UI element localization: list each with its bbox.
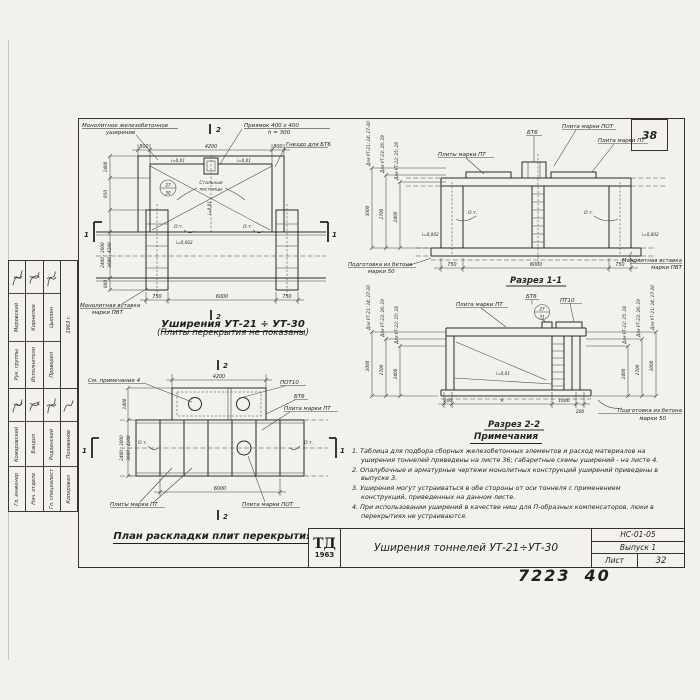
plan-slabs-texts: 2 4200 См. примечание 4 ПОТ10 БТ6 Плита … xyxy=(82,362,345,521)
callout-label: Монолитная вставка xyxy=(80,303,141,309)
axis-label: О.т. xyxy=(174,224,183,230)
dim-label: 750 xyxy=(447,262,456,268)
dim-label: 6000 xyxy=(530,262,542,268)
detail-balloon-top: 27 xyxy=(165,183,171,188)
dim-label: 2400 ; 3000 xyxy=(100,242,105,268)
chain-label: Для УТ-22; 25; 28 xyxy=(394,142,399,181)
dim-label: 750 xyxy=(152,294,161,300)
dim-label: 4200 xyxy=(213,374,225,380)
stamp-role: Нач. отдела xyxy=(31,473,37,505)
signature-icon xyxy=(9,389,25,422)
org-logo-text: ТД xyxy=(313,538,336,551)
note-item: 4. При использовании уширений в качестве… xyxy=(352,503,660,521)
chain-label: Для УТ-23; 26; 29 xyxy=(380,135,385,174)
dim-label: 2400 xyxy=(393,211,398,222)
axis-label: О.т. xyxy=(468,210,477,216)
handwritten-number: 7223 xyxy=(518,566,571,585)
callout-label: h = 300 xyxy=(268,130,291,136)
callout-label: Плита марки ПТ xyxy=(456,302,503,308)
signature-icon xyxy=(26,261,42,294)
stamp-group-upper: Мировский Рук. группы Корнилюк Исполните… xyxy=(9,261,77,389)
stamp-group-lower: Комаровский Гл. инженер Бандол Нач. отде… xyxy=(9,389,77,511)
dim-label: 750 xyxy=(615,262,624,268)
section-mark: 1 xyxy=(82,447,87,455)
stamp-name: Мировский xyxy=(14,303,20,332)
callout-label: БТ6 xyxy=(526,294,537,300)
stamp-entry: Комаровский Гл. инженер xyxy=(9,389,26,511)
sheet-number: 32 xyxy=(638,554,684,567)
notes-heading: Примечания xyxy=(352,424,660,443)
section-mark: 1 xyxy=(340,447,345,455)
callout-label: Монолитное железобетонное xyxy=(82,123,169,129)
section-1-1-figure: Для УТ-21; 24; 27-30 Для УТ-23; 26; 29 Д… xyxy=(346,116,684,288)
stamp-entry: Родзинский Гл. специалист xyxy=(44,389,61,511)
section-2-2-figure: Для УТ-21; 24; 27-30 Для УТ-23; 26; 29 Д… xyxy=(346,290,684,436)
handwritten-numbers: 722340 xyxy=(518,566,611,585)
callout-label: Плиты марки ПТ xyxy=(438,152,486,158)
slope-label: i=0,002 xyxy=(176,240,193,245)
callout-label: Монолитная вставка xyxy=(622,258,683,264)
dim-label: 6000 xyxy=(214,486,226,492)
chain-label: Для УТ-21; 24; 27-30 xyxy=(366,121,371,167)
dim-label: А xyxy=(499,398,503,404)
callout-label: Плита марки ПОТ xyxy=(242,502,294,508)
callout-label: Приямок 400 x 400 xyxy=(244,123,299,129)
drawing-sheet: 38 xyxy=(0,0,700,700)
dim-label: 950 xyxy=(103,190,108,198)
section-2-2-texts: Для УТ-21; 24; 27-30 Для УТ-23; 26; 29 Д… xyxy=(365,285,683,430)
callout-label: Подготовка из бетона xyxy=(348,262,413,268)
stamp-entry: Корнилюк Исполнители xyxy=(26,261,43,388)
org-logo: ТД 1963 xyxy=(309,529,341,567)
figure-title: Разрез 1-1 xyxy=(510,276,562,286)
title-block-right: НС-01-05 Выпуск 1 Лист 32 xyxy=(592,529,684,567)
note-item: 3. Уширения могут устраиваться в обе сто… xyxy=(352,484,660,502)
callout-label: ПТ10 xyxy=(560,298,575,304)
section-mark: 2 xyxy=(223,513,228,521)
org-logo-year: 1963 xyxy=(315,551,334,559)
signature-icon xyxy=(9,261,25,294)
drawing-title: Уширения тоннелей УТ-21÷УТ-30 xyxy=(341,529,592,567)
callout-label: марки 50 xyxy=(639,416,666,422)
section-mark: 2 xyxy=(223,362,228,370)
stamp-entry: Бандол Нач. отдела xyxy=(26,389,43,511)
callout-label: См. примечание 4 xyxy=(88,378,141,384)
chain-label: Для УТ-22; 25; 28 xyxy=(394,306,399,345)
callout-label: уширение xyxy=(105,130,136,136)
signature-icon xyxy=(26,389,42,422)
dim-label: 2400 xyxy=(393,368,398,379)
stamp-role: Исполнители xyxy=(31,347,37,382)
axis-label: О.т. xyxy=(584,210,593,216)
callout-label: БТ6 xyxy=(294,394,305,400)
dim-label: 3600 ; 4200 xyxy=(107,242,112,268)
stamp-role: Проверил xyxy=(49,352,55,378)
stamp-role: Копировал xyxy=(66,475,72,504)
axis-label: О.т. xyxy=(243,224,252,230)
dim-label: 4200 xyxy=(205,144,217,150)
note-item: 2. Опалубочные и арматурные чертежи моно… xyxy=(352,466,660,484)
dim-label: 800 xyxy=(103,280,108,288)
notes-block: Примечания 1. Таблица для подбора сборны… xyxy=(352,424,660,522)
section-mark: 1 xyxy=(332,231,337,239)
section-mark: 1 xyxy=(84,231,89,239)
dim-label: 3000 xyxy=(649,360,654,371)
chain-label: Для УТ-21; 24; 27-30 xyxy=(366,285,371,331)
callout-label: Подготовка из бетона xyxy=(618,408,683,414)
section-mark: 2 xyxy=(216,126,221,134)
dim-label: 2400 ; 3000 xyxy=(119,435,124,461)
dim-label: 200 xyxy=(444,398,453,404)
dim-label: 2400 xyxy=(621,368,626,379)
dim-label: 3600 ; 4200 xyxy=(126,435,131,461)
chain-label: Для УТ-22; 25; 28 xyxy=(622,306,627,345)
detail-balloon-top: 27 xyxy=(539,307,545,312)
dim-label: 750 xyxy=(282,294,291,300)
slope-label: i=0,002 xyxy=(422,232,439,237)
plan-slabs-title: План раскладки плит перекрытия xyxy=(88,524,338,543)
stamp-name: Поливанов xyxy=(66,430,72,459)
plan-widening-geometry xyxy=(80,124,330,320)
dim-label: 2700 xyxy=(379,364,384,375)
detail-balloon-bottom: 30 xyxy=(165,191,171,196)
dim-label: 1000 xyxy=(558,398,570,404)
stamp-date-column: 1963 г. xyxy=(61,261,77,388)
plan-widening-subtitle: (Плиты перекрытия не показаны) xyxy=(112,328,354,338)
slope-label: i=0,01 xyxy=(171,158,185,163)
stamp-name: Бандол xyxy=(31,434,37,453)
stamp-role: Рук. группы xyxy=(14,349,20,380)
axis-label: О.т. xyxy=(304,440,313,446)
callout-label: марки 50 xyxy=(368,269,395,275)
callout-label: лестницы xyxy=(198,188,223,193)
slope-label: i=0,01 xyxy=(496,371,510,376)
signature-icon xyxy=(44,261,60,294)
slope-label: i=0,002 xyxy=(642,232,659,237)
stamp-role: Гл. специалист xyxy=(49,469,55,509)
signature-icon xyxy=(61,389,77,422)
callout-label: Плита марки ПОТ xyxy=(562,124,614,130)
stamp-entry: Цыплин Проверил xyxy=(44,261,61,388)
left-approval-stamp: Мировский Рук. группы Корнилюк Исполните… xyxy=(8,260,78,512)
dim-label: 2700 xyxy=(635,364,640,375)
slope-label: i=0,01 xyxy=(207,201,212,215)
callout-label: ПОТ10 xyxy=(280,380,299,386)
stamp-date: 1963 г. xyxy=(66,315,72,334)
callout-label: БТ6 xyxy=(527,130,538,136)
dim-label: 1400 xyxy=(122,398,127,409)
callout-label: Плита марки ПТ xyxy=(598,138,645,144)
dim-label: 6000 xyxy=(216,294,228,300)
stamp-name: Цыплин xyxy=(49,307,55,328)
stamp-name: Комаровский xyxy=(14,427,20,462)
signature-icon xyxy=(44,389,60,422)
callout-label: Гнездо для БТ6 xyxy=(286,142,331,148)
callout-label: Плиты марки ПТ xyxy=(110,502,158,508)
dim-label: 800 xyxy=(139,144,148,150)
issue-label: Выпуск 1 xyxy=(592,542,684,555)
note-item: 1. Таблица для подбора сборных железобет… xyxy=(352,447,660,465)
chain-label: Для УТ-23; 26; 29 xyxy=(380,299,385,338)
stamp-name: Корнилюк xyxy=(31,304,37,331)
axis-label: О.т. xyxy=(138,440,147,446)
dim-label: 1400 xyxy=(103,161,108,172)
stamp-entry: Поливанов Копировал xyxy=(61,389,77,511)
dim-label: 3000 xyxy=(365,360,370,371)
slope-label: i=0,01 xyxy=(237,158,251,163)
document-code: НС-01-05 xyxy=(592,529,684,542)
title-block: ТД 1963 Уширения тоннелей УТ-21÷УТ-30 НС… xyxy=(308,528,685,568)
handwritten-number: 40 xyxy=(585,566,611,585)
stamp-name: Родзинский xyxy=(49,429,55,460)
callout-label: Плита марки ПТ xyxy=(284,406,331,412)
section-1-1-texts: Для УТ-21; 24; 27-30 Для УТ-23; 26; 29 Д… xyxy=(348,121,683,286)
chain-label: Для УТ-21; 24; 27-30 xyxy=(650,285,655,331)
dim-label: 2700 xyxy=(379,208,384,219)
plan-widening-figure: 2 800 4200 800 Монолитное железобетонное… xyxy=(80,120,342,338)
plan-slabs-figure: 2 4200 См. примечание 4 ПОТ10 БТ6 Плита … xyxy=(80,356,348,524)
dim-label: 200 xyxy=(576,409,585,415)
stamp-entry: Мировский Рук. группы xyxy=(9,261,26,388)
chain-label: Для УТ-23; 26; 29 xyxy=(636,299,641,338)
detail-balloon-bottom: 31 xyxy=(539,315,545,320)
callout-label: марки ПВТ xyxy=(651,265,683,271)
dim-label: 800 xyxy=(273,144,282,150)
stamp-role: Гл. инженер xyxy=(14,473,20,506)
callout-label: Стальные xyxy=(199,180,223,186)
dim-label: 3000 xyxy=(365,205,370,216)
